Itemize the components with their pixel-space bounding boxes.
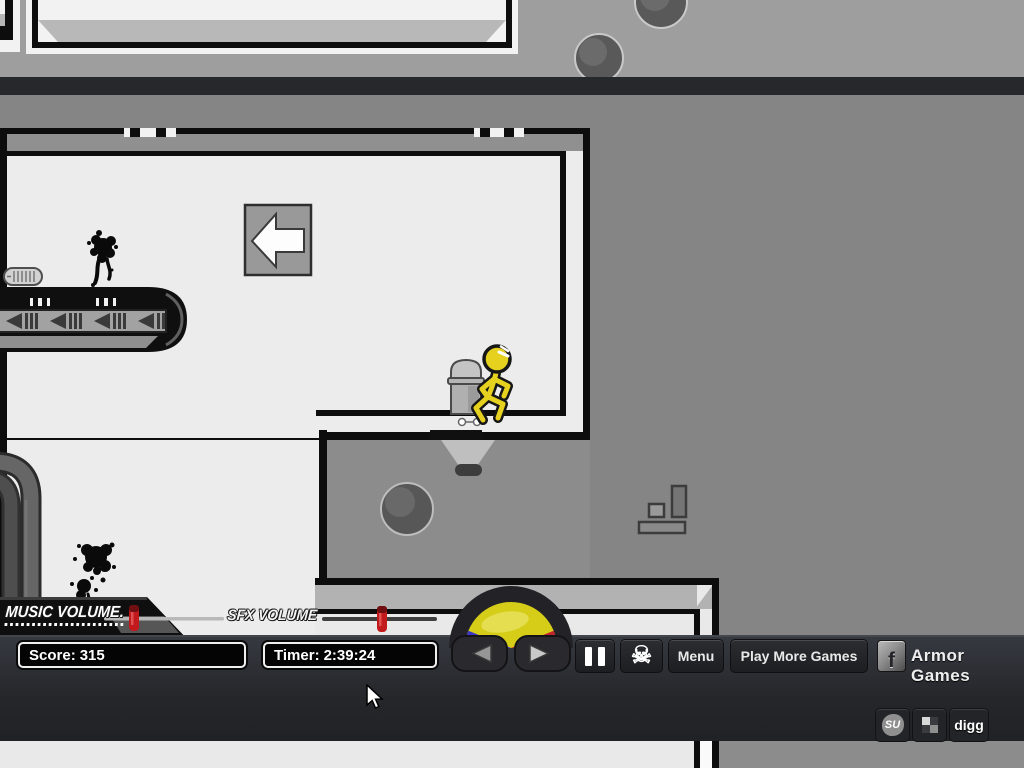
direction-sign [245, 205, 311, 275]
suicide-button[interactable]: ☠ [620, 639, 663, 673]
score-label: Score: [29, 647, 76, 664]
mouse-cursor [366, 684, 386, 712]
timer-label: Timer: [274, 647, 320, 664]
sfx-slider-knob[interactable] [377, 606, 387, 632]
timer-value: 2:39:24 [324, 647, 376, 664]
digg-icon[interactable]: digg [949, 708, 989, 742]
play-more-games-button[interactable]: Play More Games [730, 639, 868, 673]
skull-crossbones-icon: ☠ [631, 644, 653, 668]
upper-room-bottom [26, 0, 518, 54]
music-volume-label: MUSIC VOLUME. [4, 604, 124, 626]
dark-divider-strip [0, 77, 1024, 95]
boulder[interactable] [381, 483, 433, 535]
menu-button[interactable]: Menu [668, 639, 724, 673]
score-display: Score:315 [18, 642, 246, 668]
top-left-room-corner [0, 0, 20, 52]
pause-icon [585, 647, 592, 666]
delicious-icon[interactable] [912, 708, 947, 742]
sfx-volume-label: SFX VOLUME [227, 607, 318, 624]
pause-button[interactable] [575, 639, 615, 673]
music-slider-knob[interactable] [129, 605, 139, 631]
wall-vent [4, 268, 42, 285]
score-value: 315 [80, 647, 105, 664]
stumbleupon-icon[interactable]: SU [875, 708, 910, 742]
move-left-button[interactable] [452, 636, 507, 671]
armor-games-logo[interactable]: Armor Games [911, 646, 1024, 686]
movement-dpad[interactable] [448, 586, 574, 674]
facebook-icon[interactable]: f [877, 640, 906, 672]
conveyor-belt [0, 287, 187, 352]
move-right-button[interactable] [515, 636, 570, 671]
game-window: MUSIC VOLUME. SFX VOLUME Score:315 Timer… [0, 0, 1024, 768]
bottom-strip [0, 740, 1024, 768]
timer-display: Timer:2:39:24 [263, 642, 437, 668]
